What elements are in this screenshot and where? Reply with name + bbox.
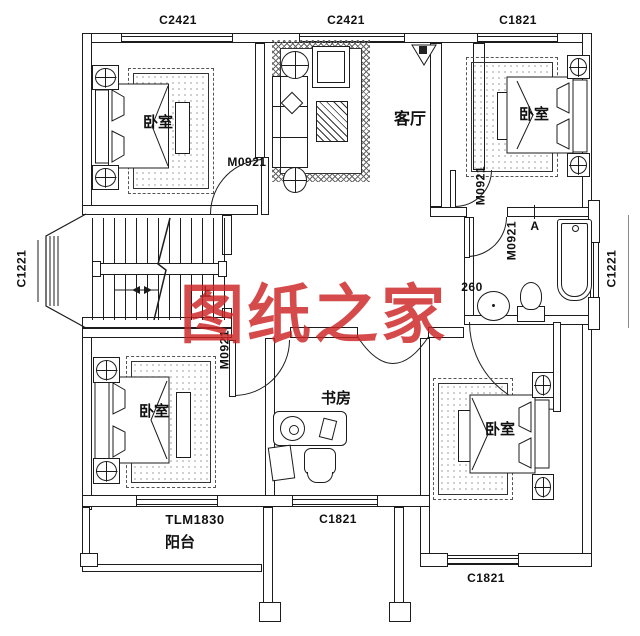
door-arc-bathroom <box>467 217 507 257</box>
dimension-line <box>628 215 629 328</box>
wall <box>507 207 592 217</box>
wall <box>82 33 92 215</box>
nightstand-lamp <box>567 55 590 79</box>
window-c1821-study <box>293 495 377 507</box>
door-label-m0921-bathroom: M0921 <box>505 218 518 264</box>
window-c2421-left <box>122 33 232 43</box>
wall <box>420 338 430 567</box>
bay-window-c1221 <box>30 210 86 332</box>
dimension-260: 260 <box>457 281 487 294</box>
door-label-m0921-top-left: M0921 <box>224 156 270 169</box>
stair-rail-cap <box>218 261 227 277</box>
wall <box>377 495 430 507</box>
window-c1821-top <box>478 33 557 43</box>
monitor <box>280 416 305 441</box>
elevation-marker-a: A <box>526 220 544 233</box>
wash-basin <box>477 291 510 321</box>
side-table <box>283 167 307 193</box>
wall <box>404 33 478 43</box>
wall <box>430 207 467 217</box>
balcony-wall <box>82 564 262 572</box>
window-c1821-bottom-right <box>448 555 518 565</box>
toilet-bowl <box>520 282 542 310</box>
window-label-c2421-left: C2421 <box>150 14 206 27</box>
desk-chair <box>304 448 336 475</box>
door-leaf <box>553 322 561 412</box>
room-label-balcony: 阳台 <box>156 534 204 552</box>
column <box>389 602 411 622</box>
stair-break-line <box>144 216 180 322</box>
armchair <box>312 46 350 88</box>
room-label-bedroom-bottom-left: 卧室 <box>130 403 178 421</box>
bathtub <box>557 219 592 301</box>
nightstand-lamp <box>567 153 590 177</box>
sofa <box>272 76 308 168</box>
marker-line <box>534 205 535 219</box>
window-label-c1821-top: C1821 <box>490 14 546 27</box>
door-tlm1830 <box>137 495 217 507</box>
window-label-c1821-study: C1821 <box>308 513 368 526</box>
wall <box>582 322 592 567</box>
wall <box>217 495 293 507</box>
wall <box>588 297 600 330</box>
nightstand-lamp <box>93 458 120 484</box>
room-label-bedroom-top-left: 卧室 <box>134 114 182 132</box>
floor-plan: 上 <box>0 0 640 636</box>
stair-direction-arrows <box>112 284 160 296</box>
computer-tower <box>268 445 296 482</box>
pier <box>263 507 273 603</box>
window-label-c2421-middle: C2421 <box>318 14 374 27</box>
door-leaf <box>464 217 470 258</box>
desk-chair-back <box>307 472 333 483</box>
coffee-table <box>316 101 348 142</box>
watermark: 图纸之家 <box>180 280 448 350</box>
door-leaf <box>450 170 456 208</box>
window-label-c1221-right: C1221 <box>605 241 618 297</box>
nightstand-lamp <box>92 165 119 190</box>
wall <box>518 553 592 567</box>
bedside-bench <box>176 392 191 458</box>
room-label-bedroom-bottom-right: 卧室 <box>476 421 524 439</box>
door-label-m0921-top-right: M0921 <box>474 163 487 209</box>
room-label-bedroom-top-right: 卧室 <box>510 106 558 124</box>
window-label-c1221-left: C1221 <box>15 241 28 297</box>
nightstand-lamp <box>532 474 554 500</box>
room-label-study: 书房 <box>312 390 360 408</box>
wall <box>82 495 137 507</box>
entry-marker-icon <box>411 44 437 68</box>
stair-rail-cap <box>92 261 101 277</box>
nightstand-lamp <box>92 65 119 90</box>
pier <box>394 507 404 603</box>
wall <box>255 43 265 158</box>
wall <box>82 328 92 510</box>
side-table <box>281 51 309 79</box>
column <box>259 602 281 622</box>
balcony-corner <box>80 553 98 567</box>
room-label-living: 客厅 <box>384 110 436 129</box>
door-label-tlm1830: TLM1830 <box>150 513 240 527</box>
wall <box>420 553 448 567</box>
window-label-c1821-bottom-right: C1821 <box>456 572 516 585</box>
nightstand-lamp <box>93 357 120 383</box>
nightstand-lamp <box>532 372 554 398</box>
